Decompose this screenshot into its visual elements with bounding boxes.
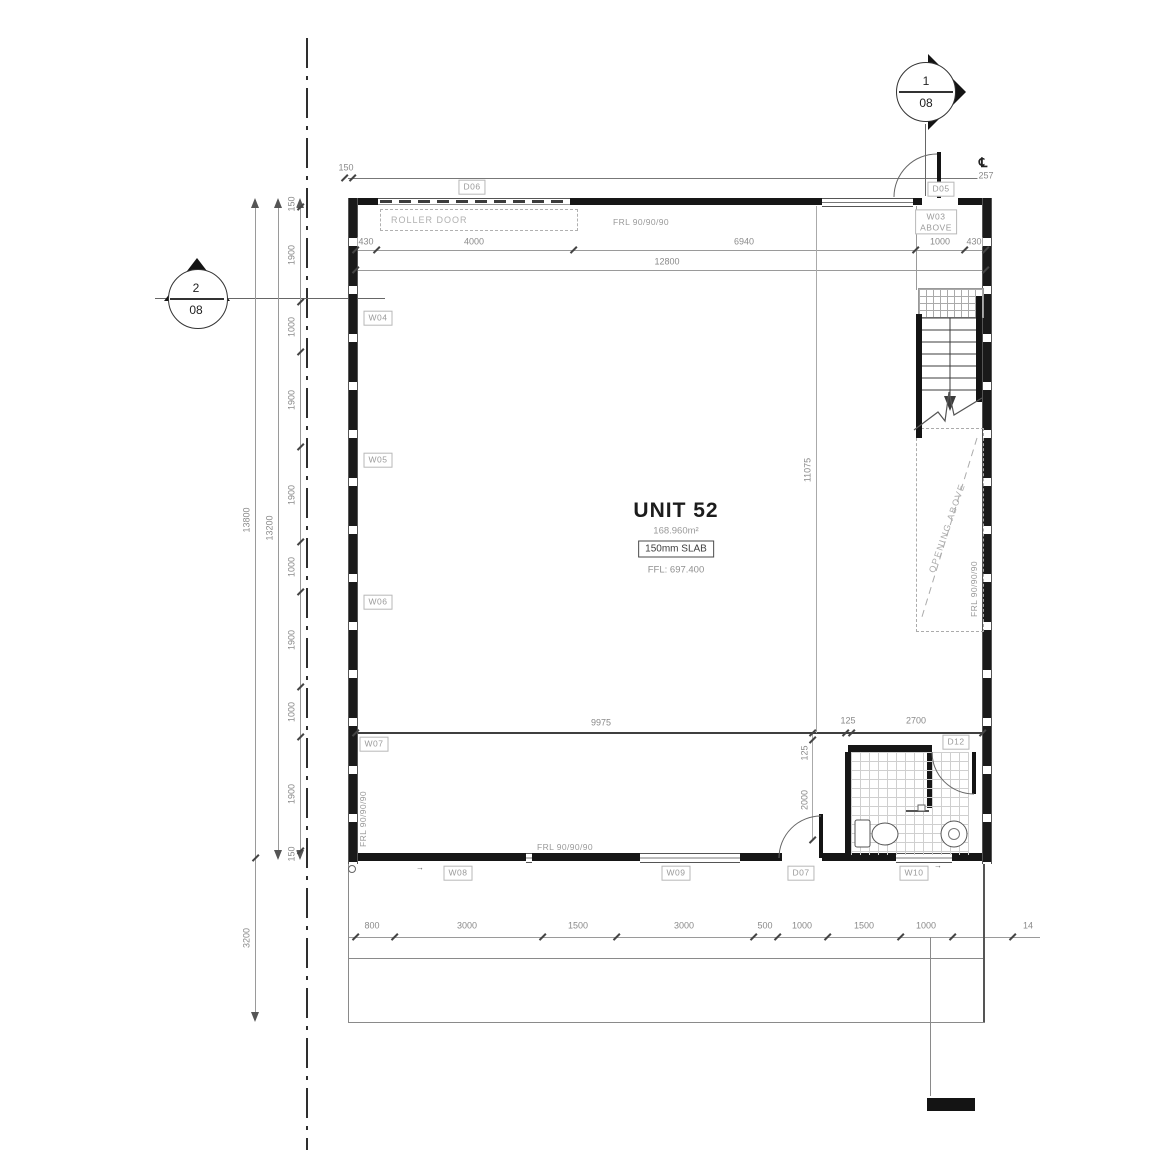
wall-tag-w03-above: W03 ABOVE	[915, 209, 957, 234]
wall-tag-w06: W06	[364, 595, 393, 610]
dimension-label: 6940	[733, 238, 755, 247]
dimension-label: 1900	[288, 244, 297, 266]
stair-landing-hatch	[918, 288, 984, 318]
interior-wall-line	[355, 732, 982, 734]
wall-tag-w07: W07	[360, 737, 389, 752]
dimension-label: 11075	[804, 457, 813, 483]
bathroom-wall-top	[848, 745, 932, 752]
wall-top	[570, 198, 822, 205]
dimension-label: 1000	[929, 238, 951, 247]
dimension-label: 1000	[288, 316, 297, 338]
dim-line-13800	[255, 200, 256, 1020]
roller-door-label-box: ROLLER DOOR	[380, 209, 578, 231]
dimension-label: 1500	[567, 922, 589, 931]
wall-top	[913, 198, 922, 205]
dimension-label: 1000	[791, 922, 813, 931]
stairs	[922, 318, 982, 396]
door-tag-d05: D05	[927, 182, 954, 197]
dimension-label: 3000	[456, 922, 478, 931]
dimension-label: 500	[756, 922, 773, 931]
dimension-label: 1900	[288, 783, 297, 805]
wall-tag-w05: W05	[364, 453, 393, 468]
dimension-label: 4000	[463, 238, 485, 247]
section-marker-1-divider	[899, 91, 953, 93]
corner-setout-point	[349, 866, 356, 873]
dimension-label: 800	[363, 922, 380, 931]
slab-note: 150mm SLAB	[638, 541, 714, 558]
dimension-label: 13800	[243, 506, 252, 533]
dimension-label: 3200	[243, 927, 252, 949]
roller-door-dashed-leaf	[380, 200, 570, 203]
wall-joint	[526, 853, 532, 863]
wall-tag-w09: W09	[662, 866, 691, 881]
dimension-label: 13200	[266, 514, 275, 541]
dimension-label: 1000	[915, 922, 937, 931]
dimension-label: 125	[801, 744, 810, 761]
dim-line-bottom-chain	[348, 937, 1040, 938]
ffl-note: FFL: 697.400	[648, 565, 705, 576]
unit-title: UNIT 52	[633, 499, 718, 523]
tick-mark	[808, 836, 815, 843]
dimension-label: 2700	[905, 717, 927, 726]
apron-edge-right	[983, 864, 985, 1022]
section-marker-2-number: 2	[193, 282, 200, 294]
wall-tag-w04: W04	[364, 311, 393, 326]
door-d12-leaf	[972, 752, 976, 794]
window-w03-segment	[822, 198, 913, 207]
stair-wall-left	[916, 314, 922, 438]
dimension-label: 150	[288, 195, 297, 212]
dimension-label: 14	[1022, 922, 1034, 931]
wall-tag-w08: W08	[444, 866, 473, 881]
wall-left	[348, 198, 358, 864]
roller-door-sill-line	[378, 204, 570, 205]
dimension-label: 150	[288, 845, 297, 862]
centreline-dimension: 257	[977, 172, 994, 181]
dimension-label: 2000	[801, 789, 810, 811]
dim-line-11075	[816, 206, 817, 733]
setout-marker-bar	[927, 1098, 975, 1111]
door-tag-d06: D06	[458, 180, 485, 195]
bathroom-tiles	[851, 752, 969, 855]
tick-mark	[340, 174, 347, 181]
dimension-label: 12800	[653, 258, 680, 267]
dimension-label: 430	[965, 238, 982, 247]
section-marker-1-number: 1	[923, 75, 930, 87]
door-tag-d07: D07	[787, 866, 814, 881]
door-d07-leaf	[819, 814, 823, 858]
window-swing-arrow-icon: →	[934, 862, 942, 870]
dimension-label: 125	[839, 717, 856, 726]
centreline	[306, 38, 308, 1150]
dimension-label: 1000	[288, 556, 297, 578]
wall-bottom	[740, 853, 782, 861]
wall-bottom	[348, 853, 526, 861]
section-1-sight-line	[925, 124, 926, 196]
frl-note: FRL 90/90/90	[611, 218, 671, 227]
dim-line-top-chain	[355, 250, 985, 251]
dimension-label: 1900	[288, 389, 297, 411]
dimension-label: 150	[337, 164, 354, 173]
dim-line-13200	[278, 200, 279, 858]
stair-down-arrow-icon	[944, 396, 956, 411]
roller-door-head-line	[378, 198, 570, 199]
apron-edge-left	[348, 864, 349, 1022]
section-marker-2-divider	[170, 298, 224, 300]
dimension-label: 1900	[288, 484, 297, 506]
canopy-line	[348, 178, 993, 179]
wall-tag-w10: W10	[900, 866, 929, 881]
roller-door-label: ROLLER DOOR	[391, 215, 468, 225]
frl-note: FRL 90/90/90	[970, 559, 979, 619]
apron-line	[348, 958, 985, 959]
dim-line-top-overall	[355, 270, 985, 271]
frl-note: FRL 90/90/90	[535, 843, 595, 852]
dimension-label: 9975	[590, 719, 612, 728]
window-w09-segment	[640, 853, 740, 863]
dim-line-2000	[812, 733, 813, 840]
wall-bottom	[532, 853, 640, 861]
window-swing-arrow-icon: →	[416, 864, 424, 872]
dimension-label: 3000	[673, 922, 695, 931]
dimension-label: 1900	[288, 629, 297, 651]
door-tag-d12: D12	[942, 735, 969, 750]
stair-break-line	[914, 392, 982, 430]
section-marker-1-sheet: 08	[919, 97, 932, 109]
frl-note: FRL 90/90/90	[359, 789, 368, 849]
dimension-label: 1500	[853, 922, 875, 931]
apron-line	[348, 1022, 985, 1023]
dimension-label: 430	[357, 238, 374, 247]
centreline-symbol: ℄	[979, 155, 987, 171]
unit-area: 168.960m²	[653, 526, 698, 537]
dimension-label: 1000	[288, 701, 297, 723]
setout-leader-line	[930, 937, 931, 1096]
floor-plan: ROLLER DOOR OPENING ABOVE	[0, 0, 1150, 1150]
section-marker-2-sheet: 08	[189, 304, 202, 316]
